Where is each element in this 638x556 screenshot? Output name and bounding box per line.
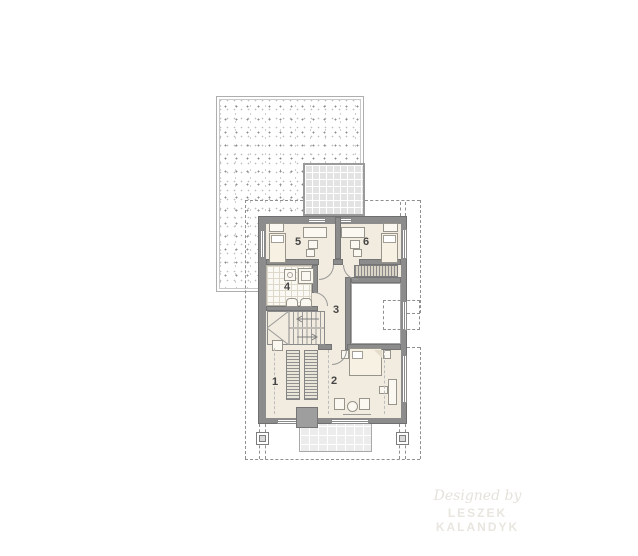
room-label-1: 1 — [272, 375, 278, 389]
roof-outline-top-left — [245, 200, 303, 201]
room6-desk — [341, 227, 365, 238]
watermark-designer-name: LESZEK KALANDYK — [405, 506, 550, 534]
room1-rack-right — [304, 350, 318, 400]
room5-chair — [308, 240, 318, 249]
room6-bed — [381, 233, 398, 263]
room2-bed — [349, 348, 382, 376]
room2-pillow — [352, 351, 363, 359]
washing-machine-drum — [287, 272, 293, 278]
room2-coffee-table — [347, 401, 358, 412]
room5-nightstand — [269, 223, 284, 232]
room5-desk — [303, 227, 327, 238]
wall-door-pier — [333, 259, 343, 265]
roof-outline-left — [245, 200, 246, 459]
room2-desk — [388, 379, 397, 405]
roof-outline-right-upper — [420, 200, 421, 313]
room2-armchair-right — [359, 398, 370, 410]
knee-wall-line-room2 — [384, 350, 385, 414]
terrace-post-left — [256, 432, 269, 445]
window-room5-north — [308, 218, 326, 223]
terrace-post-right-core — [399, 435, 406, 442]
washbasin-left — [286, 298, 298, 307]
upper-balcony — [303, 163, 365, 216]
room-label-3: 3 — [333, 303, 339, 317]
terrace-post-left-core — [259, 435, 266, 442]
wall-room5-room6 — [335, 217, 341, 259]
window-room2-east — [402, 355, 407, 403]
room5-side-table — [306, 249, 315, 257]
roof-edge-tick-2 — [405, 202, 406, 216]
room1-room2-divider-line — [328, 350, 329, 414]
room6-pillow — [383, 235, 396, 243]
room-label-4: 4 — [284, 280, 290, 294]
room1-rack-left — [286, 350, 300, 400]
room5-bed — [269, 233, 286, 263]
room5-pillow — [271, 235, 284, 243]
washbasin-right — [300, 298, 312, 307]
roof-outline-notch-bottom — [407, 347, 420, 348]
floor-plan: 5 6 4 3 1 2 Designed by LESZEK KALANDYK — [0, 0, 638, 556]
window-room5-west — [260, 230, 265, 258]
room-label-5: 5 — [295, 235, 301, 249]
roof-outline-top-right — [365, 200, 420, 201]
shower-tray-inner — [301, 271, 311, 281]
room-label-6: 6 — [363, 235, 369, 249]
shower-tray — [298, 268, 314, 284]
watermark-designed-by: Designed by — [405, 488, 550, 504]
terrace-post-right — [396, 432, 409, 445]
chimney — [296, 407, 318, 428]
designer-watermark: Designed by LESZEK KALANDYK — [405, 488, 550, 534]
terrace-door-room2 — [331, 419, 369, 424]
roof-edge-tick-1 — [400, 202, 401, 216]
room2-armchair-left — [334, 398, 345, 410]
room-label-2: 2 — [331, 374, 337, 388]
room6-chair — [350, 240, 360, 249]
roof-outline-right-lower — [420, 347, 421, 459]
room6-nightstand — [383, 223, 398, 232]
room2-blanket-fold — [374, 350, 382, 358]
hallway-wardrobe — [354, 265, 398, 277]
roof-outline-bottom — [245, 459, 420, 460]
room2-rug-line — [343, 414, 371, 415]
roof-window-marker — [383, 300, 420, 330]
window-room1-south — [277, 419, 297, 424]
window-room6-east — [402, 229, 407, 259]
room6-side-table — [353, 249, 362, 257]
